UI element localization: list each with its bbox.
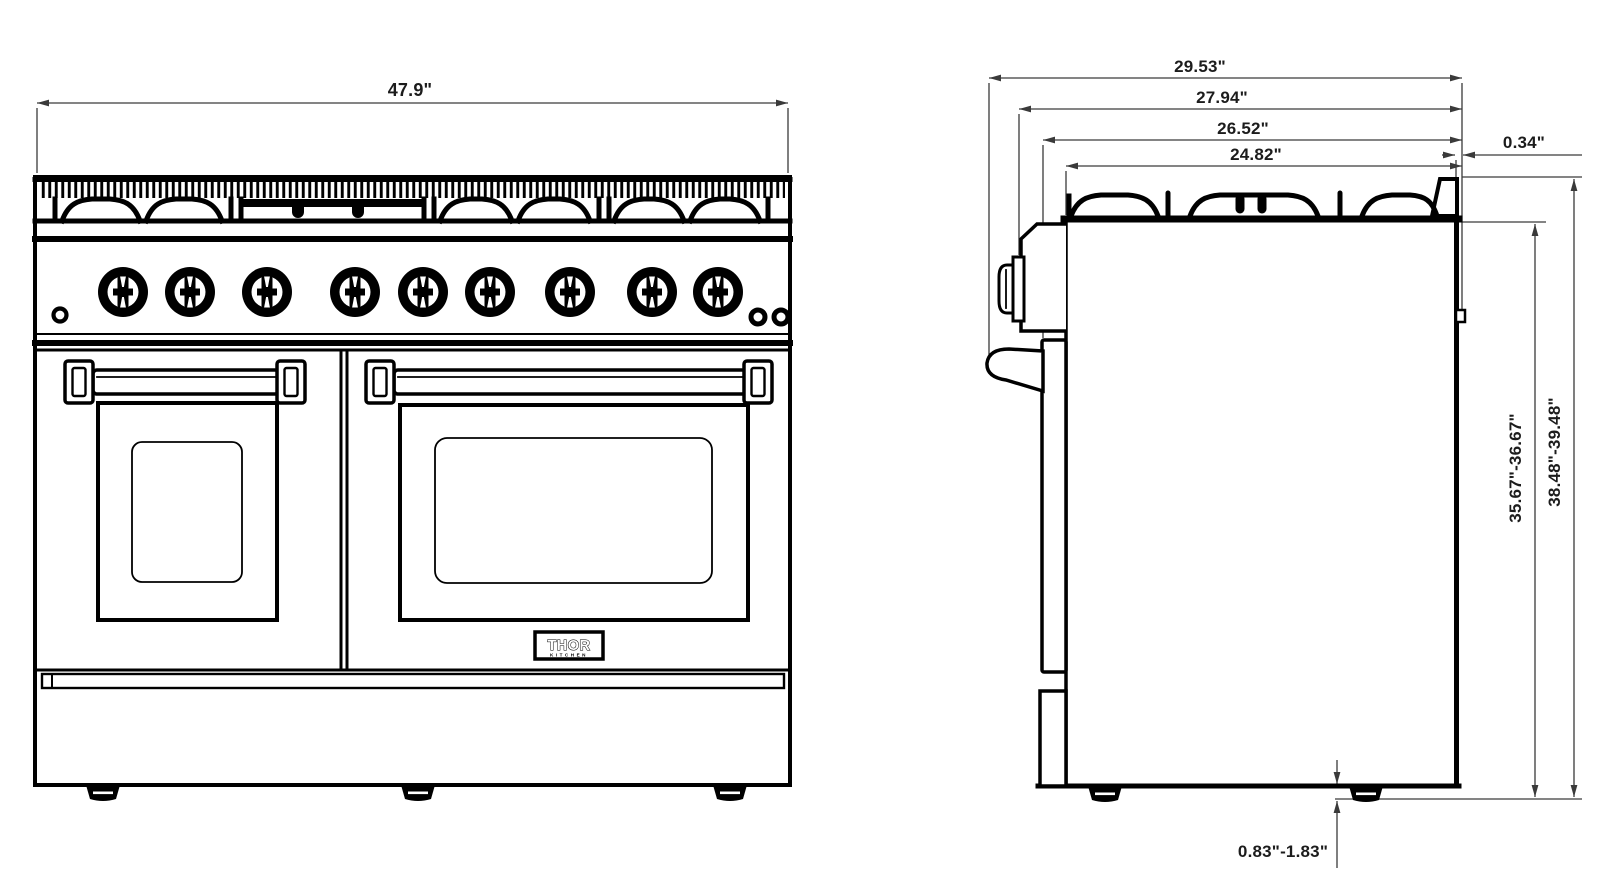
cooktop-height-label: 35.67"-36.67" bbox=[1506, 413, 1525, 522]
range-spec-diagram: 47.9" bbox=[0, 0, 1600, 895]
side-drawer-front bbox=[1040, 691, 1066, 786]
right-door-window-glass bbox=[435, 438, 712, 583]
burner-grate-profiles bbox=[55, 199, 768, 221]
front-view: 47.9" bbox=[35, 80, 790, 801]
side-view: 29.53" 27.94" 26.52" 24.82" 0.34" bbox=[987, 57, 1582, 868]
leg-height-dimension: 0.83"-1.83" bbox=[1238, 760, 1337, 868]
side-grate-profile bbox=[1069, 193, 1437, 216]
side-oven-door bbox=[1042, 340, 1066, 672]
burner-knob bbox=[465, 267, 515, 317]
burner-knob bbox=[165, 267, 215, 317]
leveling-foot bbox=[1088, 786, 1122, 802]
grate-tick-band bbox=[40, 182, 785, 198]
right-oven-door: THOR KITCHEN bbox=[366, 361, 772, 659]
rear-trim-label: 0.34" bbox=[1503, 133, 1545, 152]
side-door-handle bbox=[987, 349, 1043, 391]
leveling-foot bbox=[1349, 786, 1383, 802]
burner-knob bbox=[242, 267, 292, 317]
front-width-dimension-label: 47.9" bbox=[388, 80, 433, 100]
indicator-light bbox=[54, 309, 67, 322]
range-body-outline bbox=[35, 177, 790, 785]
side-body bbox=[987, 179, 1465, 802]
leveling-foot bbox=[401, 785, 435, 801]
depth-to-door-label: 26.52" bbox=[1217, 119, 1269, 138]
burner-knob bbox=[398, 267, 448, 317]
side-control-panel bbox=[1021, 224, 1066, 331]
handle-end-cap bbox=[366, 361, 394, 403]
handle-end-cap bbox=[744, 361, 772, 403]
handle-end-cap bbox=[65, 361, 93, 403]
control-panel bbox=[35, 267, 790, 343]
overall-height-label: 38.48"-39.48" bbox=[1545, 397, 1564, 506]
handle-end-cap bbox=[277, 361, 305, 403]
lower-trim bbox=[42, 674, 784, 688]
diagram-canvas: 47.9" bbox=[0, 0, 1600, 895]
rear-trim-dimension: 0.34" bbox=[1442, 133, 1582, 196]
front-width-dimension: 47.9" bbox=[37, 80, 788, 173]
leg-height-label: 0.83"-1.83" bbox=[1238, 842, 1328, 861]
left-door-handle-bar bbox=[93, 370, 279, 394]
lower-trim-band bbox=[42, 674, 784, 688]
gas-inlet-bump bbox=[1456, 310, 1465, 322]
brand-badge: THOR KITCHEN bbox=[535, 632, 603, 659]
indicator-light bbox=[774, 310, 788, 324]
left-oven-door bbox=[65, 361, 305, 620]
depth-overall-label: 29.53" bbox=[1174, 57, 1226, 76]
burner-knob bbox=[627, 267, 677, 317]
leveling-foot bbox=[713, 785, 747, 801]
left-door-window-glass bbox=[132, 442, 242, 582]
leveling-foot bbox=[86, 785, 120, 801]
depth-body-label: 24.82" bbox=[1230, 145, 1282, 164]
burner-knob bbox=[545, 267, 595, 317]
burner-knob bbox=[98, 267, 148, 317]
burner-knob bbox=[330, 267, 380, 317]
left-door-window bbox=[98, 403, 277, 620]
indicator-light bbox=[751, 310, 765, 324]
brand-logo-subtext: KITCHEN bbox=[550, 653, 588, 658]
right-door-handle-bar bbox=[394, 370, 746, 394]
cooktop-grates bbox=[35, 180, 790, 240]
side-knob-base bbox=[1013, 257, 1024, 321]
burner-knob bbox=[693, 267, 743, 317]
depth-to-panel-label: 27.94" bbox=[1196, 88, 1248, 107]
oven-doors: THOR KITCHEN bbox=[35, 350, 790, 670]
front-view-feet bbox=[86, 785, 747, 801]
